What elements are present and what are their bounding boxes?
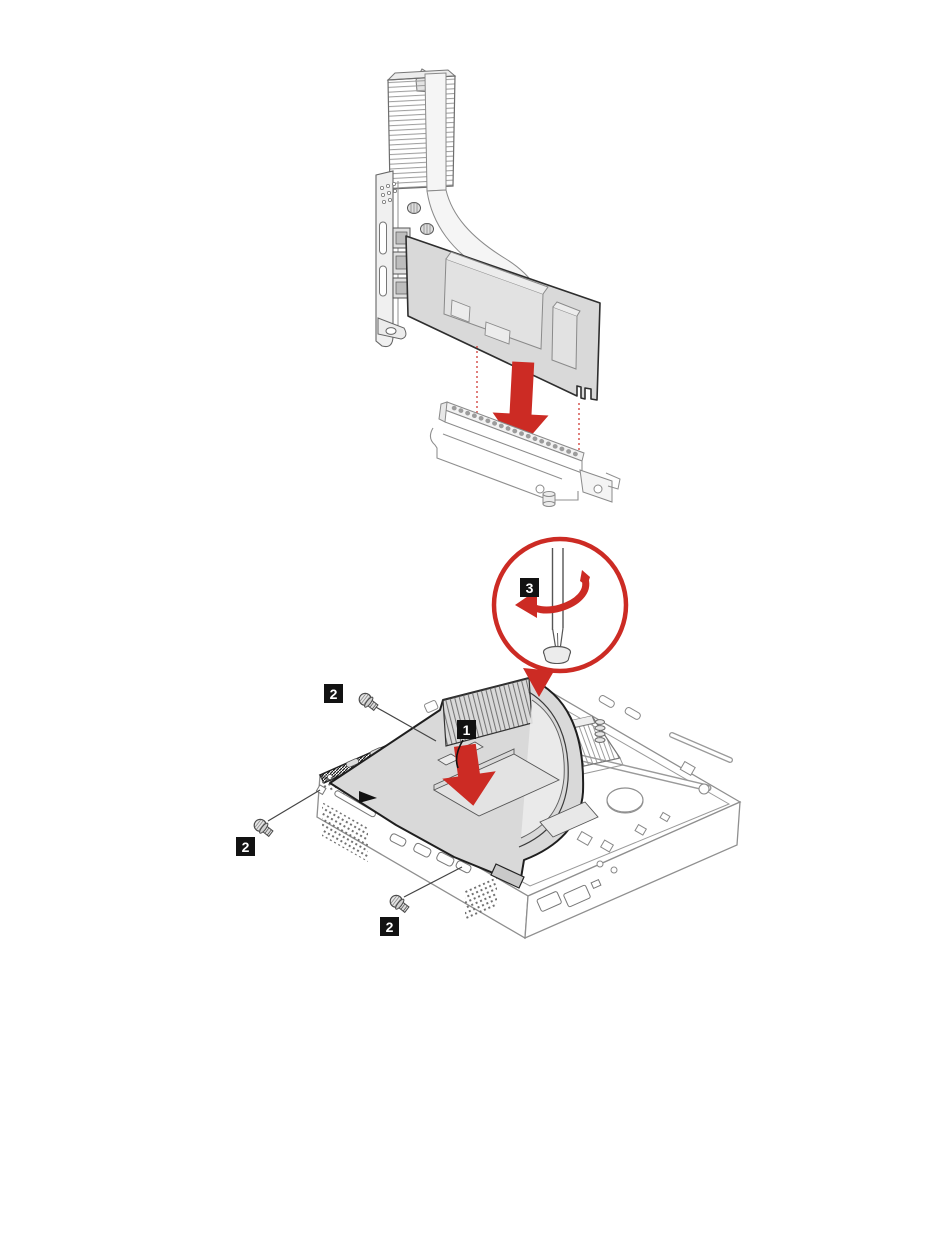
thumbscrew: [408, 203, 421, 214]
riser-foot-peg: [543, 492, 555, 507]
callout-2-label: 2: [386, 919, 394, 935]
callout-3-label: 3: [526, 580, 534, 596]
callout-3: 3: [520, 578, 539, 597]
installation-figures: 1 2 2 2 3: [0, 0, 950, 1260]
screw-icon: [252, 817, 275, 839]
figure-align-card-with-riser: [376, 69, 620, 507]
callout-2-label: 2: [330, 686, 338, 702]
callout-2-label: 2: [242, 839, 250, 855]
callout-1-label: 1: [463, 722, 471, 738]
screw-icon: [357, 691, 380, 713]
bracket-slot: [380, 222, 387, 254]
manual-illustration-page: 1 2 2 2 3: [0, 0, 950, 1260]
figure-install-into-chassis: 1 2 2 2 3: [236, 539, 740, 938]
callout-2-top: 2: [324, 684, 343, 703]
callout-2-bottom: 2: [380, 917, 399, 936]
thumbscrew: [421, 224, 434, 235]
callout-2-left: 2: [236, 837, 255, 856]
callout-1: 1: [457, 720, 476, 739]
screwdriver-magnifier: [494, 539, 626, 697]
coin-battery: [607, 788, 643, 813]
captive-screw: [544, 647, 571, 664]
bracket-slot: [380, 266, 387, 296]
screw-icon: [388, 893, 411, 915]
